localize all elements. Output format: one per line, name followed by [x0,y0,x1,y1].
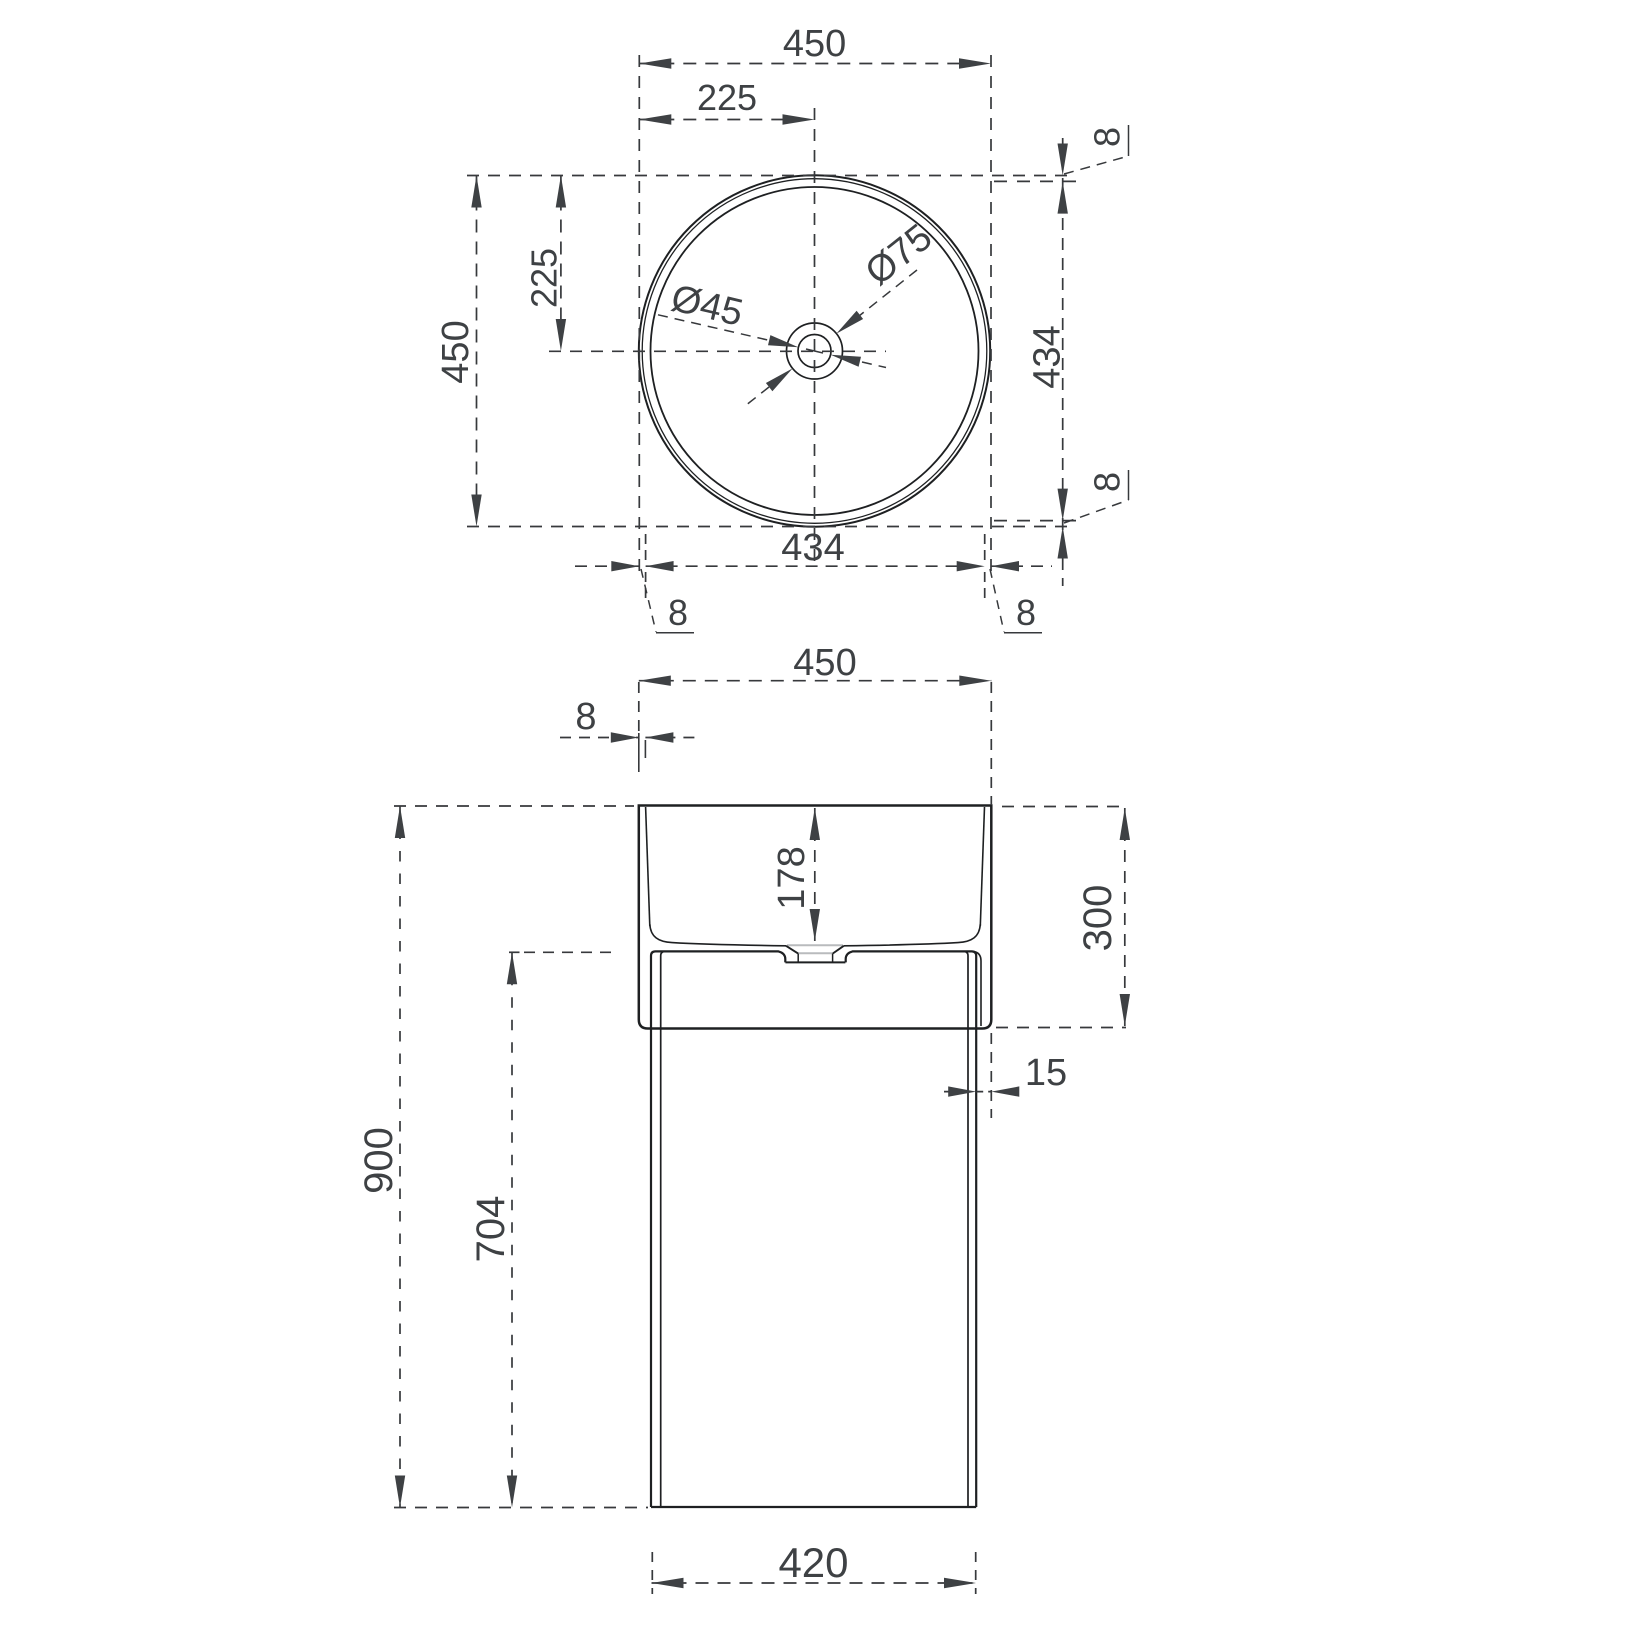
svg-text:178: 178 [771,846,813,909]
svg-text:8: 8 [668,592,688,633]
svg-text:434: 434 [781,527,844,569]
svg-text:8: 8 [1087,127,1128,147]
svg-text:Ø75: Ø75 [858,216,940,294]
svg-text:900: 900 [357,1127,401,1194]
svg-text:450: 450 [793,642,856,684]
svg-text:420: 420 [778,1539,848,1586]
svg-text:434: 434 [1027,325,1069,388]
svg-text:225: 225 [524,248,565,308]
svg-text:8: 8 [1016,592,1036,633]
svg-text:300: 300 [1076,885,1120,952]
svg-text:450: 450 [783,23,846,65]
svg-text:450: 450 [435,320,477,383]
svg-text:704: 704 [469,1196,513,1263]
svg-text:225: 225 [697,77,757,118]
svg-text:Ø45: Ø45 [667,277,747,335]
svg-text:8: 8 [575,696,596,738]
svg-text:15: 15 [1025,1052,1067,1094]
svg-text:8: 8 [1087,472,1128,492]
